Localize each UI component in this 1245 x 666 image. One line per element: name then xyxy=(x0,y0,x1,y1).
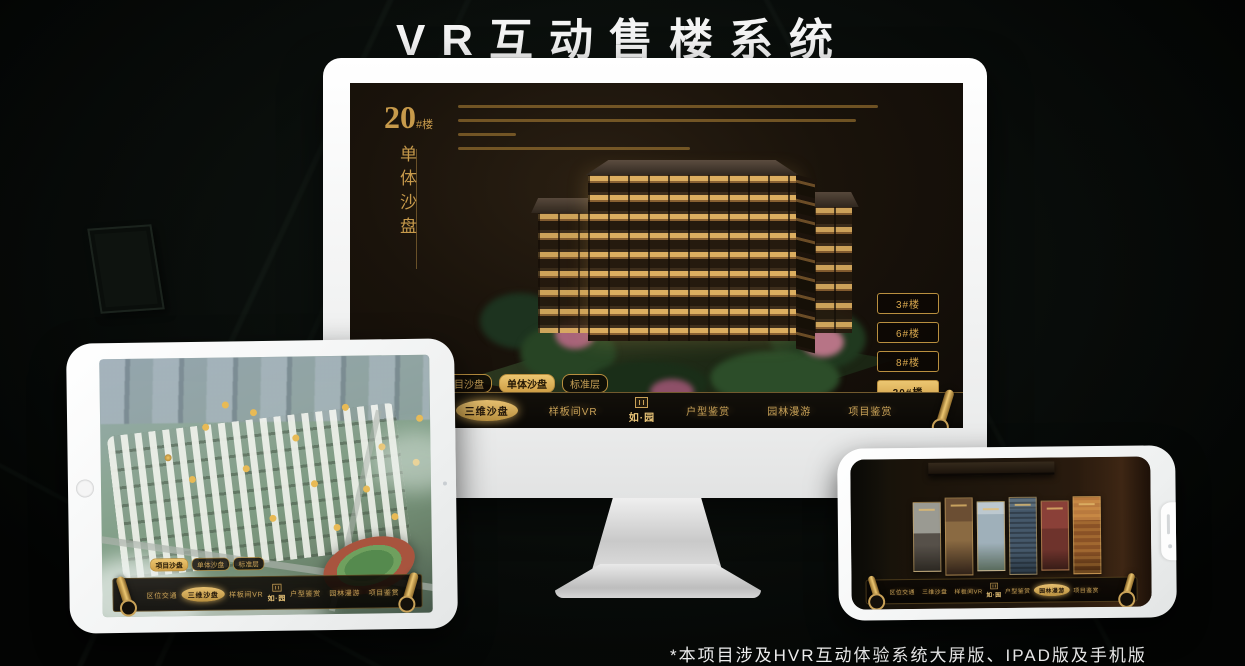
scene-card[interactable] xyxy=(1009,497,1038,575)
floor-number: 20 xyxy=(384,99,416,135)
monitor-stand-base xyxy=(555,564,761,598)
building-model xyxy=(588,173,796,341)
promo-canvas: VR互动售楼系统 20#楼 单体沙盘 xyxy=(0,0,1245,666)
brand-logo: 如·园 xyxy=(986,583,1001,599)
decor-vertical-rule xyxy=(416,149,417,269)
speaker-icon xyxy=(1167,514,1170,534)
nav-item-project-gallery[interactable]: 项目鉴赏 xyxy=(1070,584,1103,595)
nav-item-unit-plans[interactable]: 户型鉴赏 xyxy=(680,401,736,420)
nav-item-garden-tour[interactable]: 园林漫游 xyxy=(761,401,817,420)
nav-item-unit-plans[interactable]: 户型鉴赏 xyxy=(286,585,325,599)
seal-icon xyxy=(272,583,281,591)
nav-item-3d-sandbox[interactable]: 三维沙盘 xyxy=(181,586,225,601)
scene-card[interactable] xyxy=(1041,500,1070,570)
nav-item-garden-tour[interactable]: 园林漫游 xyxy=(325,585,364,599)
brand-logo-text: 如·园 xyxy=(629,409,655,424)
nav-item-showroom-vr[interactable]: 样板间VR xyxy=(951,585,986,596)
brand-logo-text: 如·园 xyxy=(267,592,286,603)
nav-row: 区位交通 三维沙盘 样板间VR 如·园 户型鉴赏 园林漫游 项目鉴赏 xyxy=(886,582,1103,600)
view-tabs: 项目沙盘 单体沙盘 标准层 xyxy=(436,374,608,393)
nav-item-unit-plans[interactable]: 户型鉴赏 xyxy=(1001,585,1034,596)
scroll-icon[interactable] xyxy=(115,575,135,612)
tab-standard-floor[interactable]: 标准层 xyxy=(233,557,264,570)
nav-item-showroom-vr[interactable]: 样板间VR xyxy=(543,401,604,420)
building-left-wing xyxy=(538,211,590,333)
seal-icon xyxy=(635,397,648,408)
phone-bottom-nav: 区位交通 三维沙盘 样板间VR 如·园 户型鉴赏 园林漫游 项目鉴赏 xyxy=(865,577,1137,605)
tab-single-sandbox[interactable]: 单体沙盘 xyxy=(191,557,229,570)
floor-button-8[interactable]: 8#楼 xyxy=(877,351,939,372)
nav-row: 区位交通 三维沙盘 样板间VR 如·园 户型鉴赏 园林漫游 项目鉴赏 xyxy=(142,582,393,604)
brand-logo-text: 如·园 xyxy=(986,590,1001,599)
nav-item-3d-sandbox[interactable]: 三维沙盘 xyxy=(918,586,951,597)
phone-device: 区位交通 三维沙盘 样板间VR 如·园 户型鉴赏 园林漫游 项目鉴赏 xyxy=(837,445,1177,621)
background-plaque xyxy=(87,224,165,313)
phone-screen: 区位交通 三维沙盘 样板间VR 如·园 户型鉴赏 园林漫游 项目鉴赏 xyxy=(850,456,1152,609)
home-button[interactable] xyxy=(76,479,94,497)
nav-item-showroom-vr[interactable]: 样板间VR xyxy=(225,586,268,600)
building-markers xyxy=(165,454,172,461)
nav-item-project-gallery[interactable]: 项目鉴赏 xyxy=(842,401,898,420)
floor-selector: 3#楼 6#楼 8#楼 20#楼 xyxy=(877,293,939,403)
scroll-icon[interactable] xyxy=(1120,572,1135,603)
tab-project-sandbox[interactable]: 项目沙盘 xyxy=(150,558,188,571)
brand-logo: 如·园 xyxy=(629,397,655,424)
floor-button-3[interactable]: 3#楼 xyxy=(877,293,939,314)
nav-item-location[interactable]: 区位交通 xyxy=(886,586,919,597)
seal-icon xyxy=(990,583,998,589)
tablet-bottom-nav: 区位交通 三维沙盘 样板间VR 如·园 户型鉴赏 园林漫游 项目鉴赏 xyxy=(112,574,422,612)
scene-card[interactable] xyxy=(913,502,942,572)
nav-item-garden-tour[interactable]: 园林漫游 xyxy=(1034,584,1070,597)
scene-card[interactable] xyxy=(1073,496,1102,574)
camera-icon xyxy=(443,481,447,485)
pano-door-lintel xyxy=(928,462,1054,476)
scene-card[interactable] xyxy=(977,501,1006,571)
phone-notch xyxy=(1161,502,1177,560)
monitor-stand-neck xyxy=(592,498,722,570)
floor-button-6[interactable]: 6#楼 xyxy=(877,322,939,343)
project-description-lines xyxy=(458,105,888,161)
scroll-icon[interactable] xyxy=(867,575,883,606)
nav-item-project-gallery[interactable]: 项目鉴赏 xyxy=(364,584,403,598)
brand-logo: 如·园 xyxy=(267,583,286,602)
tablet-screen: 项目沙盘 单体沙盘 标准层 区位交通 三维沙盘 样板间VR 如·园 户型鉴赏 园… xyxy=(99,355,433,618)
camera-icon xyxy=(1168,544,1172,548)
footnote: *本项目涉及HVR互动体验系统大屏版、IPAD版及手机版 xyxy=(670,641,1147,666)
tablet-view-tabs: 项目沙盘 单体沙盘 标准层 xyxy=(150,557,264,572)
scroll-icon[interactable] xyxy=(934,389,955,428)
floor-number-suffix: #楼 xyxy=(416,119,433,131)
floor-heading: 20#楼 xyxy=(384,99,433,136)
scene-card[interactable] xyxy=(945,497,974,575)
scene-gallery xyxy=(908,483,1105,589)
nav-item-location[interactable]: 区位交通 xyxy=(142,587,181,601)
tab-standard-floor[interactable]: 标准层 xyxy=(562,374,608,393)
tab-single-sandbox[interactable]: 单体沙盘 xyxy=(499,374,555,393)
tablet-device: 项目沙盘 单体沙盘 标准层 区位交通 三维沙盘 样板间VR 如·园 户型鉴赏 园… xyxy=(66,338,458,633)
nav-item-3d-sandbox[interactable]: 三维沙盘 xyxy=(456,400,518,421)
